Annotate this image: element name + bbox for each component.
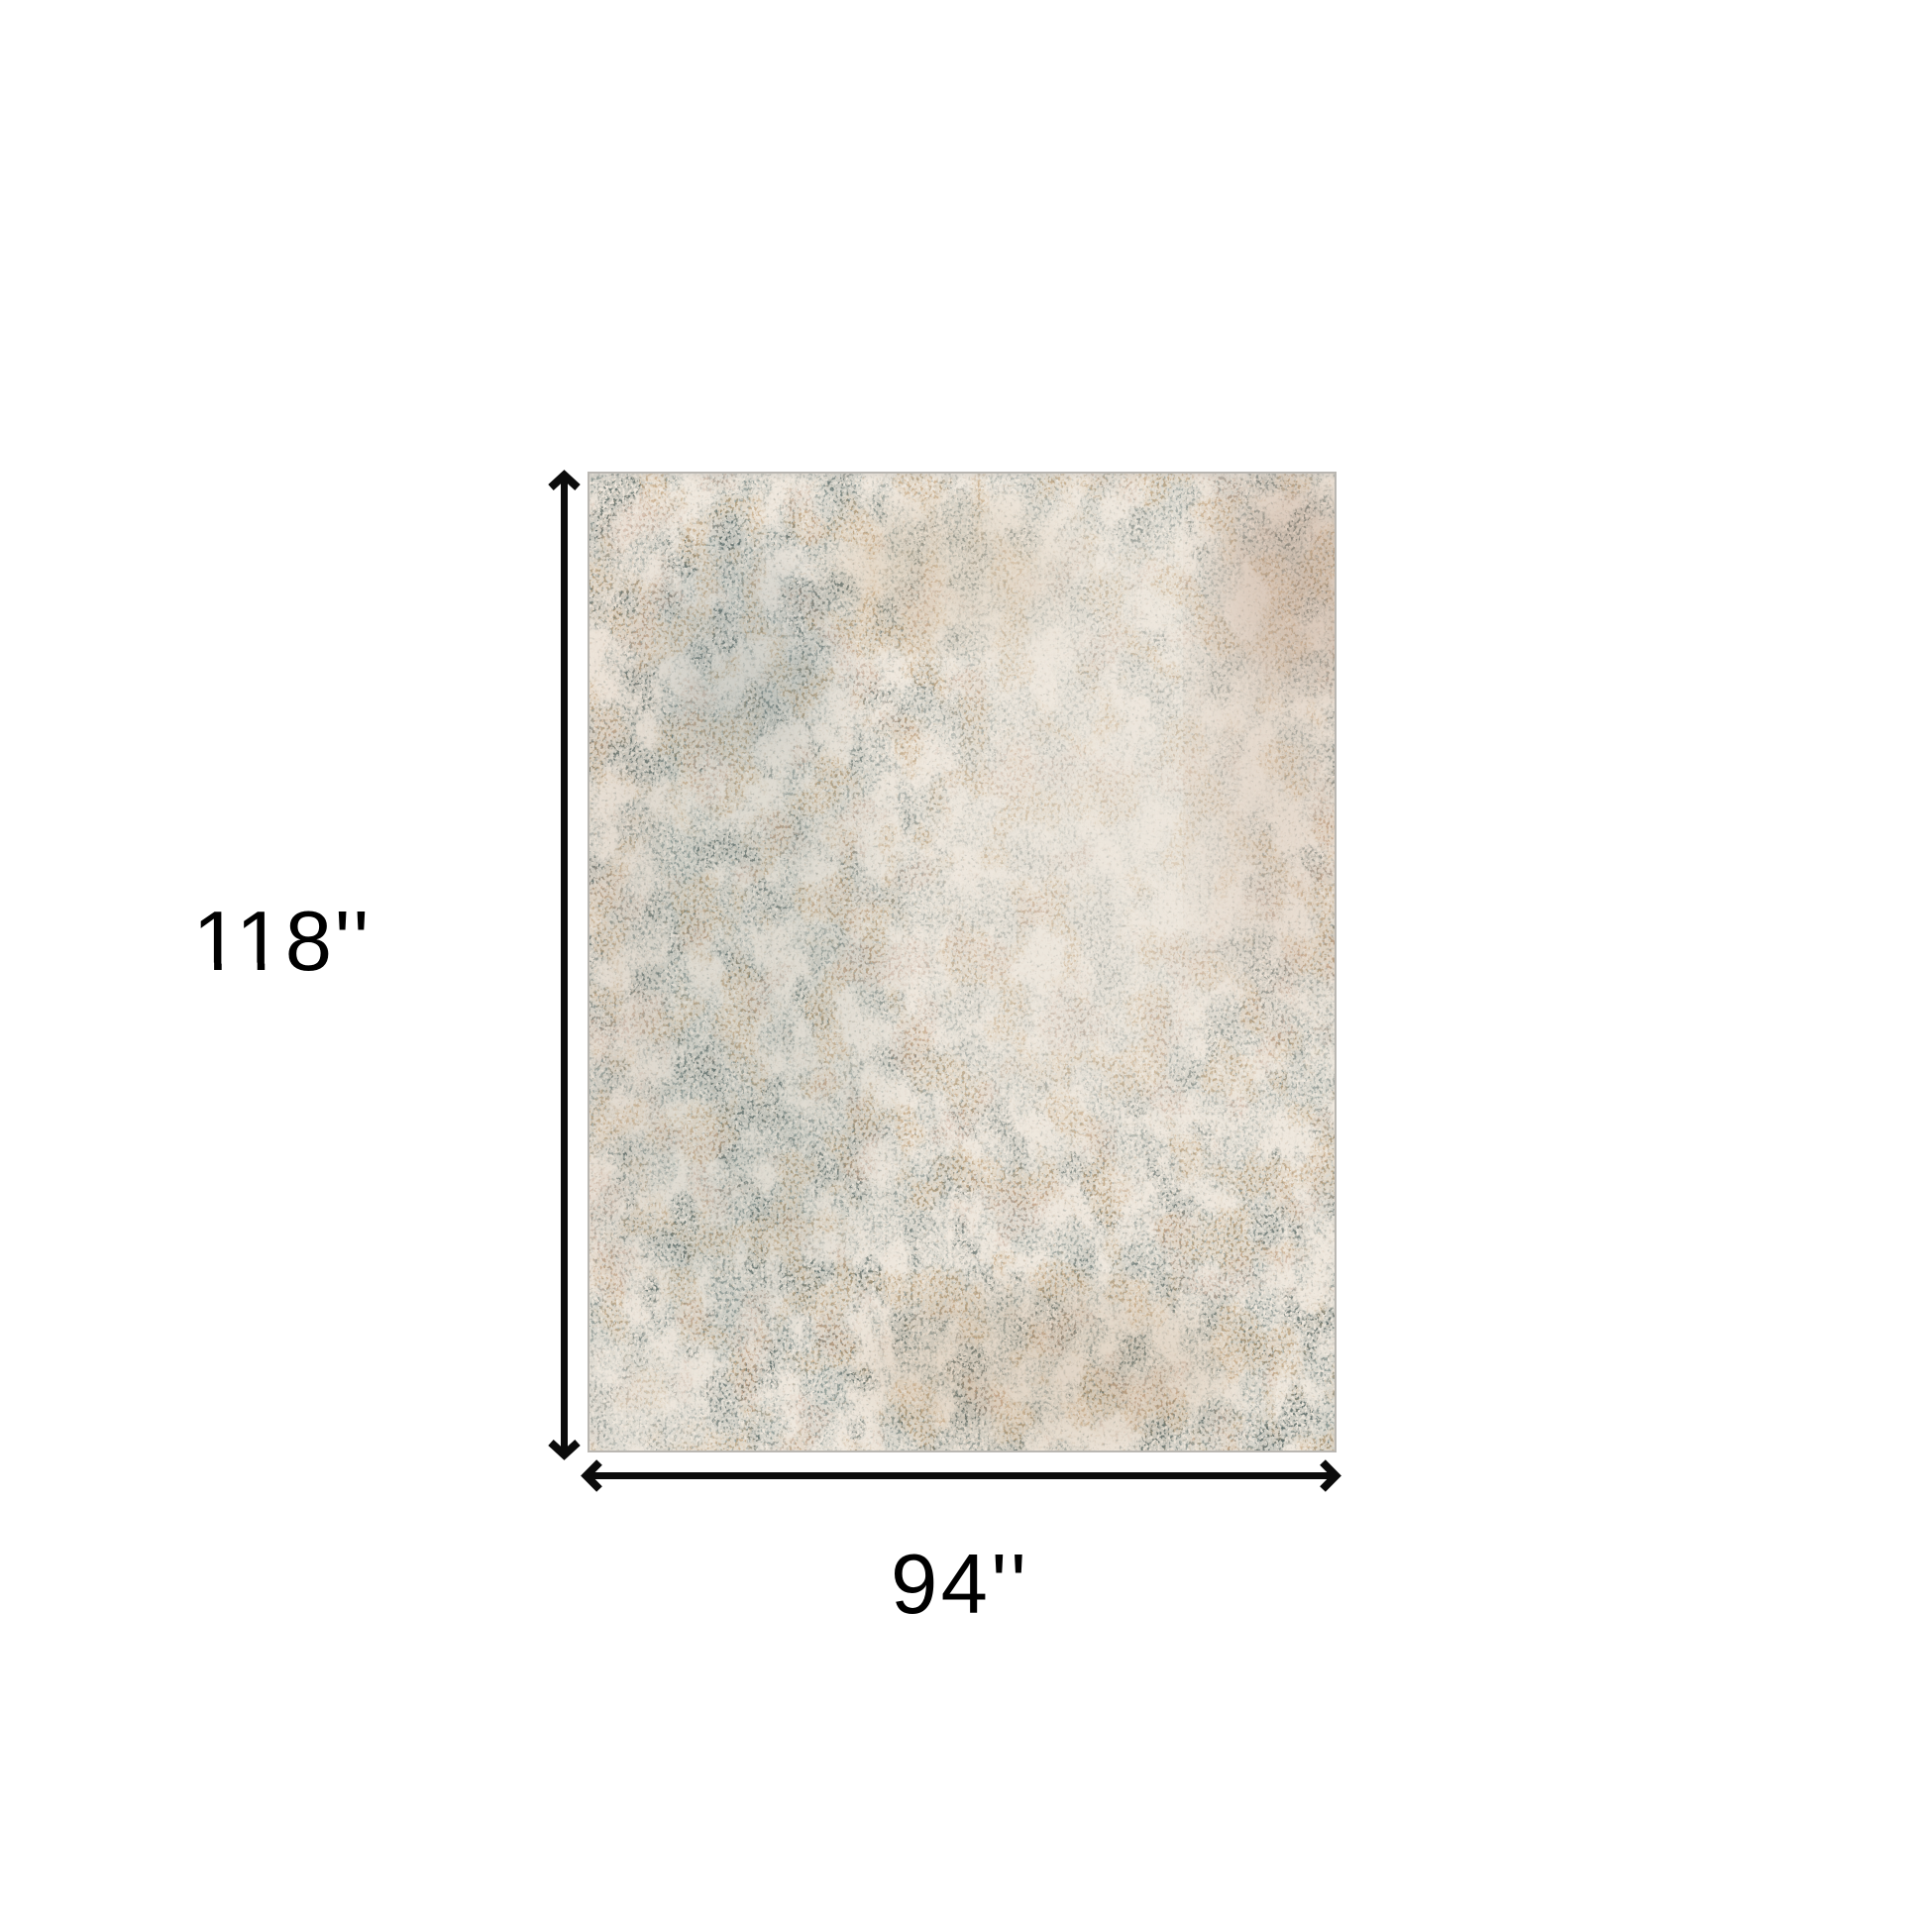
svg-text:94'': 94'' [891,1538,1026,1632]
svg-text:118'': 118'' [193,895,370,989]
